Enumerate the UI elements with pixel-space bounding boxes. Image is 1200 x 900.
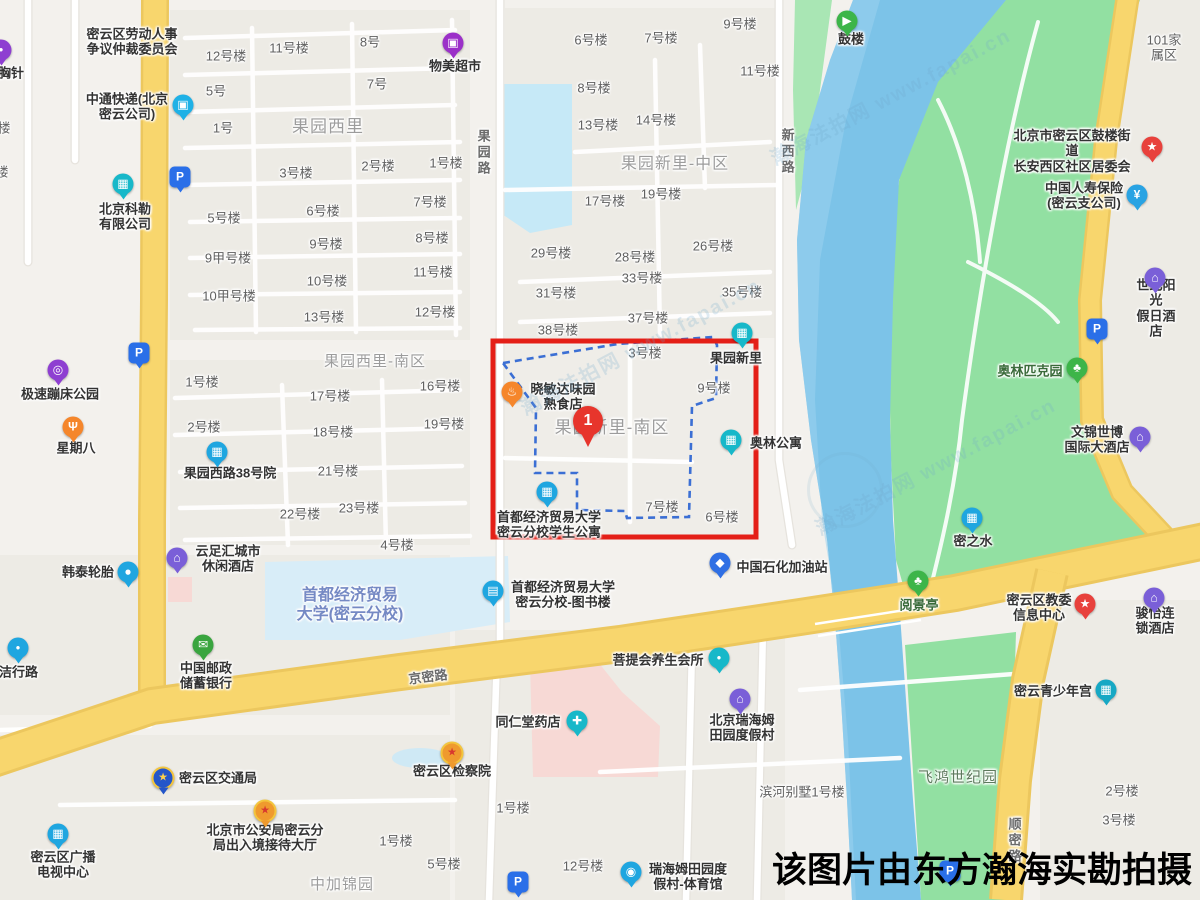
building-label: 18号楼 [313, 424, 353, 439]
poi-label[interactable]: 菩提会养生会所 [612, 652, 703, 667]
poi-label[interactable]: 星期八 [56, 440, 95, 455]
building-label: 2号楼 [1105, 783, 1138, 798]
building-label: 滨河别墅1号楼 [759, 784, 844, 799]
building-label: 23号楼 [339, 500, 379, 515]
building-label: 22号楼 [280, 506, 320, 521]
icon-tail [626, 881, 636, 888]
icon-tail [507, 401, 517, 408]
star-icon[interactable]: ★ [1075, 594, 1096, 615]
marker-tip [581, 433, 595, 447]
building-label: 3号楼 [279, 165, 312, 180]
building-label: 1号楼 [496, 800, 529, 815]
building-label: 9号楼 [309, 236, 342, 251]
poi-label[interactable]: 果园西路38号院 [184, 465, 276, 480]
icon-tail [1147, 156, 1157, 163]
building-label: 楼 [0, 120, 11, 135]
building-label: 12号楼 [206, 48, 246, 63]
pill-icon[interactable]: ✚ [567, 711, 588, 732]
tree-icon[interactable]: ♣ [908, 571, 929, 592]
poi-label[interactable]: 中国石化加油站 [736, 559, 827, 574]
building-label: 6号楼 [705, 509, 738, 524]
parking-icon[interactable]: P [1087, 319, 1108, 340]
icon-tail [172, 567, 182, 574]
building-label: 19号楼 [641, 186, 681, 201]
icon-tail [175, 186, 185, 193]
building-label: 11号楼 [740, 63, 780, 78]
building-label: 9甲号楼 [205, 250, 251, 265]
building-label: 2号楼 [361, 158, 394, 173]
building-label: 10甲号楼 [202, 288, 255, 303]
icon-tail [118, 193, 128, 200]
building-label: 9号楼 [723, 16, 756, 31]
icon-tail [1072, 377, 1082, 384]
building-icon[interactable]: ▦ [113, 174, 134, 195]
fuel-icon[interactable]: ◆ [710, 553, 731, 574]
icon-tail [1149, 607, 1159, 614]
hotel-icon[interactable]: ⌂ [167, 548, 188, 569]
icon-tail [260, 821, 270, 828]
parking-icon[interactable]: P [129, 343, 150, 364]
poi-label[interactable]: 云足汇城市 休闲酒店 [195, 544, 260, 575]
building-label: 8号楼 [415, 230, 448, 245]
label-layer: 果园西里果园新里-中区果园西里-南区果园新里-南区中加锦园飞鸿世纪园12号楼11… [0, 0, 1200, 900]
badge-icon[interactable]: ★ [152, 767, 175, 790]
building-label: 2号楼 [187, 419, 220, 434]
building-label: 7号楼 [645, 499, 678, 514]
building-label: 16号楼 [420, 378, 460, 393]
poi-label[interactable]: 胸针 [0, 65, 24, 80]
icon-tail [1080, 613, 1090, 620]
icon-tail [714, 667, 724, 674]
building-label: 10号楼 [307, 273, 347, 288]
poi-label[interactable]: 阅景亭 [899, 597, 938, 612]
poi-label[interactable]: 北京市密云区鼓楼街道 长安西区社区居委会 [1008, 128, 1136, 174]
badge-icon[interactable]: ★ [441, 742, 464, 765]
building-icon[interactable]: ▦ [732, 323, 753, 344]
building-label: 1号楼 [379, 833, 412, 848]
poi-label[interactable]: 瑞海姆田园度 假村-体育馆 [649, 862, 727, 893]
poi-label[interactable]: 密云区劳动人事 争议仲裁委员会 [86, 27, 177, 58]
building-label: 7号楼 [644, 30, 677, 45]
poi-label[interactable]: 于洁行路 [0, 664, 38, 679]
building-label: 13号楼 [578, 117, 618, 132]
poi-label[interactable]: 同仁堂药店 [495, 714, 560, 729]
yen-icon[interactable]: ¥ [1127, 185, 1148, 206]
icon-tail [198, 654, 208, 661]
arrow-icon[interactable]: ▶ [837, 11, 858, 32]
icon-tail [53, 379, 63, 386]
museum-icon[interactable]: ▦ [1096, 680, 1117, 701]
icon-tail [158, 788, 168, 795]
icon-tail [1101, 699, 1111, 706]
poi-label[interactable]: 奥林公寓 [750, 435, 802, 450]
icon-tail [842, 30, 852, 37]
book-icon[interactable]: ▤ [483, 581, 504, 602]
building-label: 19号楼 [424, 416, 464, 431]
building-label: 1号 [213, 120, 233, 135]
area-label: 果园新里-南区 [555, 418, 670, 438]
poi-label[interactable]: 首都经济贸易大学 密云分校学生公寓 [497, 510, 601, 541]
building-label: 14号楼 [636, 112, 676, 127]
tree-icon[interactable]: ♣ [1067, 358, 1088, 379]
icon-tail [53, 843, 63, 850]
building-label: 6号楼 [574, 32, 607, 47]
icon-tail [123, 581, 133, 588]
building-label: 6号楼 [306, 203, 339, 218]
poi-label[interactable]: 密云区广播 电视中心 [30, 850, 95, 881]
building-label: 33号楼 [622, 270, 662, 285]
car-icon[interactable]: ● [118, 562, 139, 583]
icon-tail [572, 730, 582, 737]
poi-label[interactable]: 密云区教委 信息中心 [1006, 593, 1071, 624]
location-marker-pin[interactable]: 1 [573, 406, 603, 447]
building-label: 38号楼 [538, 322, 578, 337]
icon-tail [1150, 287, 1160, 294]
icon-tail [913, 590, 923, 597]
building-label: 8号楼 [577, 80, 610, 95]
icon-tail [447, 763, 457, 770]
building-label: 5号楼 [427, 856, 460, 871]
poi-label[interactable]: 果园新里 [710, 350, 762, 365]
area-label: 中加锦园 [310, 876, 374, 894]
icon-tail [726, 449, 736, 456]
dot-icon[interactable]: • [8, 638, 29, 659]
icon-tail [178, 114, 188, 121]
poi-label[interactable]: 密之水 [953, 533, 992, 548]
building-label: 9号楼 [697, 380, 730, 395]
building-icon[interactable]: ▦ [207, 442, 228, 463]
parking-icon[interactable]: P [508, 872, 529, 893]
icon-tail [13, 657, 23, 664]
icon-tail [488, 600, 498, 607]
building-label: 7号 [367, 76, 387, 91]
area-label: 飞鸿世纪园 [918, 769, 998, 787]
icon-tail [134, 362, 144, 369]
building-label: 13号楼 [304, 309, 344, 324]
area-label: 果园西里 [292, 117, 364, 137]
icon-tail [715, 572, 725, 579]
poi-label[interactable]: 北京科勒 有限公司 [99, 202, 151, 233]
hotel-icon[interactable]: ⌂ [1145, 268, 1166, 289]
food-icon[interactable]: ♨ [502, 382, 523, 403]
parking-icon[interactable]: P [170, 167, 191, 188]
poi-label[interactable]: 中通快递(北京 密云公司) [86, 92, 168, 123]
hotel-icon[interactable]: ⌂ [1130, 427, 1151, 448]
poi-label[interactable]: 首都经济贸易 大学(密云分校) [297, 587, 404, 625]
building-label: 31号楼 [536, 285, 576, 300]
building-icon[interactable]: ▦ [48, 824, 69, 845]
building-label: 11号楼 [413, 264, 453, 279]
poi-label[interactable]: 密云区交通局 [179, 770, 257, 785]
icon-tail [737, 342, 747, 349]
badge-icon[interactable]: ★ [254, 800, 277, 823]
road-label: 京密路 [408, 667, 449, 687]
icon-tail [542, 501, 552, 508]
building-label: 5号 [206, 83, 226, 98]
building-label: 17号楼 [585, 193, 625, 208]
dot-icon[interactable]: • [709, 648, 730, 669]
poi-label[interactable]: 韩泰轮胎 [62, 564, 114, 579]
icon-tail [68, 436, 78, 443]
star-icon[interactable]: ★ [1142, 137, 1163, 158]
icon-tail [967, 527, 977, 534]
sports-icon[interactable]: ◉ [621, 862, 642, 883]
building-label: 17号楼 [310, 388, 350, 403]
watermark-emblem [807, 452, 883, 528]
icon-tail [1132, 204, 1142, 211]
area-label: 果园西里-南区 [324, 353, 426, 371]
poi-label[interactable]: 物美超市 [429, 58, 481, 73]
poi-label[interactable]: 极速蹦床公园 [21, 386, 99, 401]
building-label: 28号楼 [615, 249, 655, 264]
building-label: 1号楼 [429, 155, 462, 170]
building-label: 3号楼 [1102, 812, 1135, 827]
building-label: 楼 [0, 164, 9, 179]
icon-tail [735, 708, 745, 715]
building-label: 11号楼 [269, 40, 309, 55]
building-label: 1号楼 [185, 374, 218, 389]
building-label: 29号楼 [531, 245, 571, 260]
icon-tail [212, 461, 222, 468]
icon-tail [513, 891, 523, 898]
map-canvas[interactable]: 果园西里果园新里-中区果园西里-南区果园新里-南区中加锦园飞鸿世纪园12号楼11… [0, 0, 1200, 900]
icon-tail [448, 52, 458, 59]
building-label: 7号楼 [413, 194, 446, 209]
building-icon[interactable]: ▦ [537, 482, 558, 503]
building-icon[interactable]: ▦ [962, 508, 983, 529]
building-label: 101家属区 [1146, 33, 1182, 64]
area-label: 果园新里-中区 [621, 156, 729, 175]
icon-tail [1135, 446, 1145, 453]
hotel-icon[interactable]: ⌂ [1144, 588, 1165, 609]
fork-icon[interactable]: Ψ [63, 417, 84, 438]
poi-label[interactable]: 中国人寿保险 (密云支公司) [1045, 181, 1123, 212]
building-label: 21号楼 [318, 463, 358, 478]
marker-number: 1 [573, 406, 603, 436]
poi-label[interactable]: 奥林匹克园 [997, 363, 1062, 378]
building-label: 12号楼 [415, 304, 455, 319]
truck-icon[interactable]: ▣ [173, 95, 194, 116]
photo-caption: 该图片由东方瀚海实勘拍摄 [772, 842, 1192, 893]
poi-label[interactable]: 密云青少年宫 [1014, 683, 1092, 698]
shop-icon[interactable]: ▣ [443, 33, 464, 54]
poi-label[interactable]: 文锦世博 国际大酒店 [1064, 425, 1129, 456]
trampoline-icon[interactable]: ◎ [48, 360, 69, 381]
poi-label[interactable]: 北京瑞海姆 田园度假村 [709, 713, 774, 744]
building-label: 8号 [360, 34, 380, 49]
hotel-icon[interactable]: ⌂ [730, 689, 751, 710]
dot-icon[interactable]: • [0, 40, 12, 61]
building-label: 5号楼 [207, 210, 240, 225]
building-icon[interactable]: ▦ [721, 430, 742, 451]
building-label: 12号楼 [563, 858, 603, 873]
icon-tail [0, 59, 6, 66]
postal-icon[interactable]: ✉ [193, 635, 214, 656]
poi-label[interactable]: 中国邮政 储蓄银行 [180, 661, 232, 692]
road-label: 果园路 [475, 129, 490, 177]
building-label: 26号楼 [693, 238, 733, 253]
poi-label[interactable]: 首都经济贸易大学 密云分校-图书楼 [511, 580, 615, 611]
building-label: 4号楼 [380, 537, 413, 552]
icon-tail [1092, 338, 1102, 345]
